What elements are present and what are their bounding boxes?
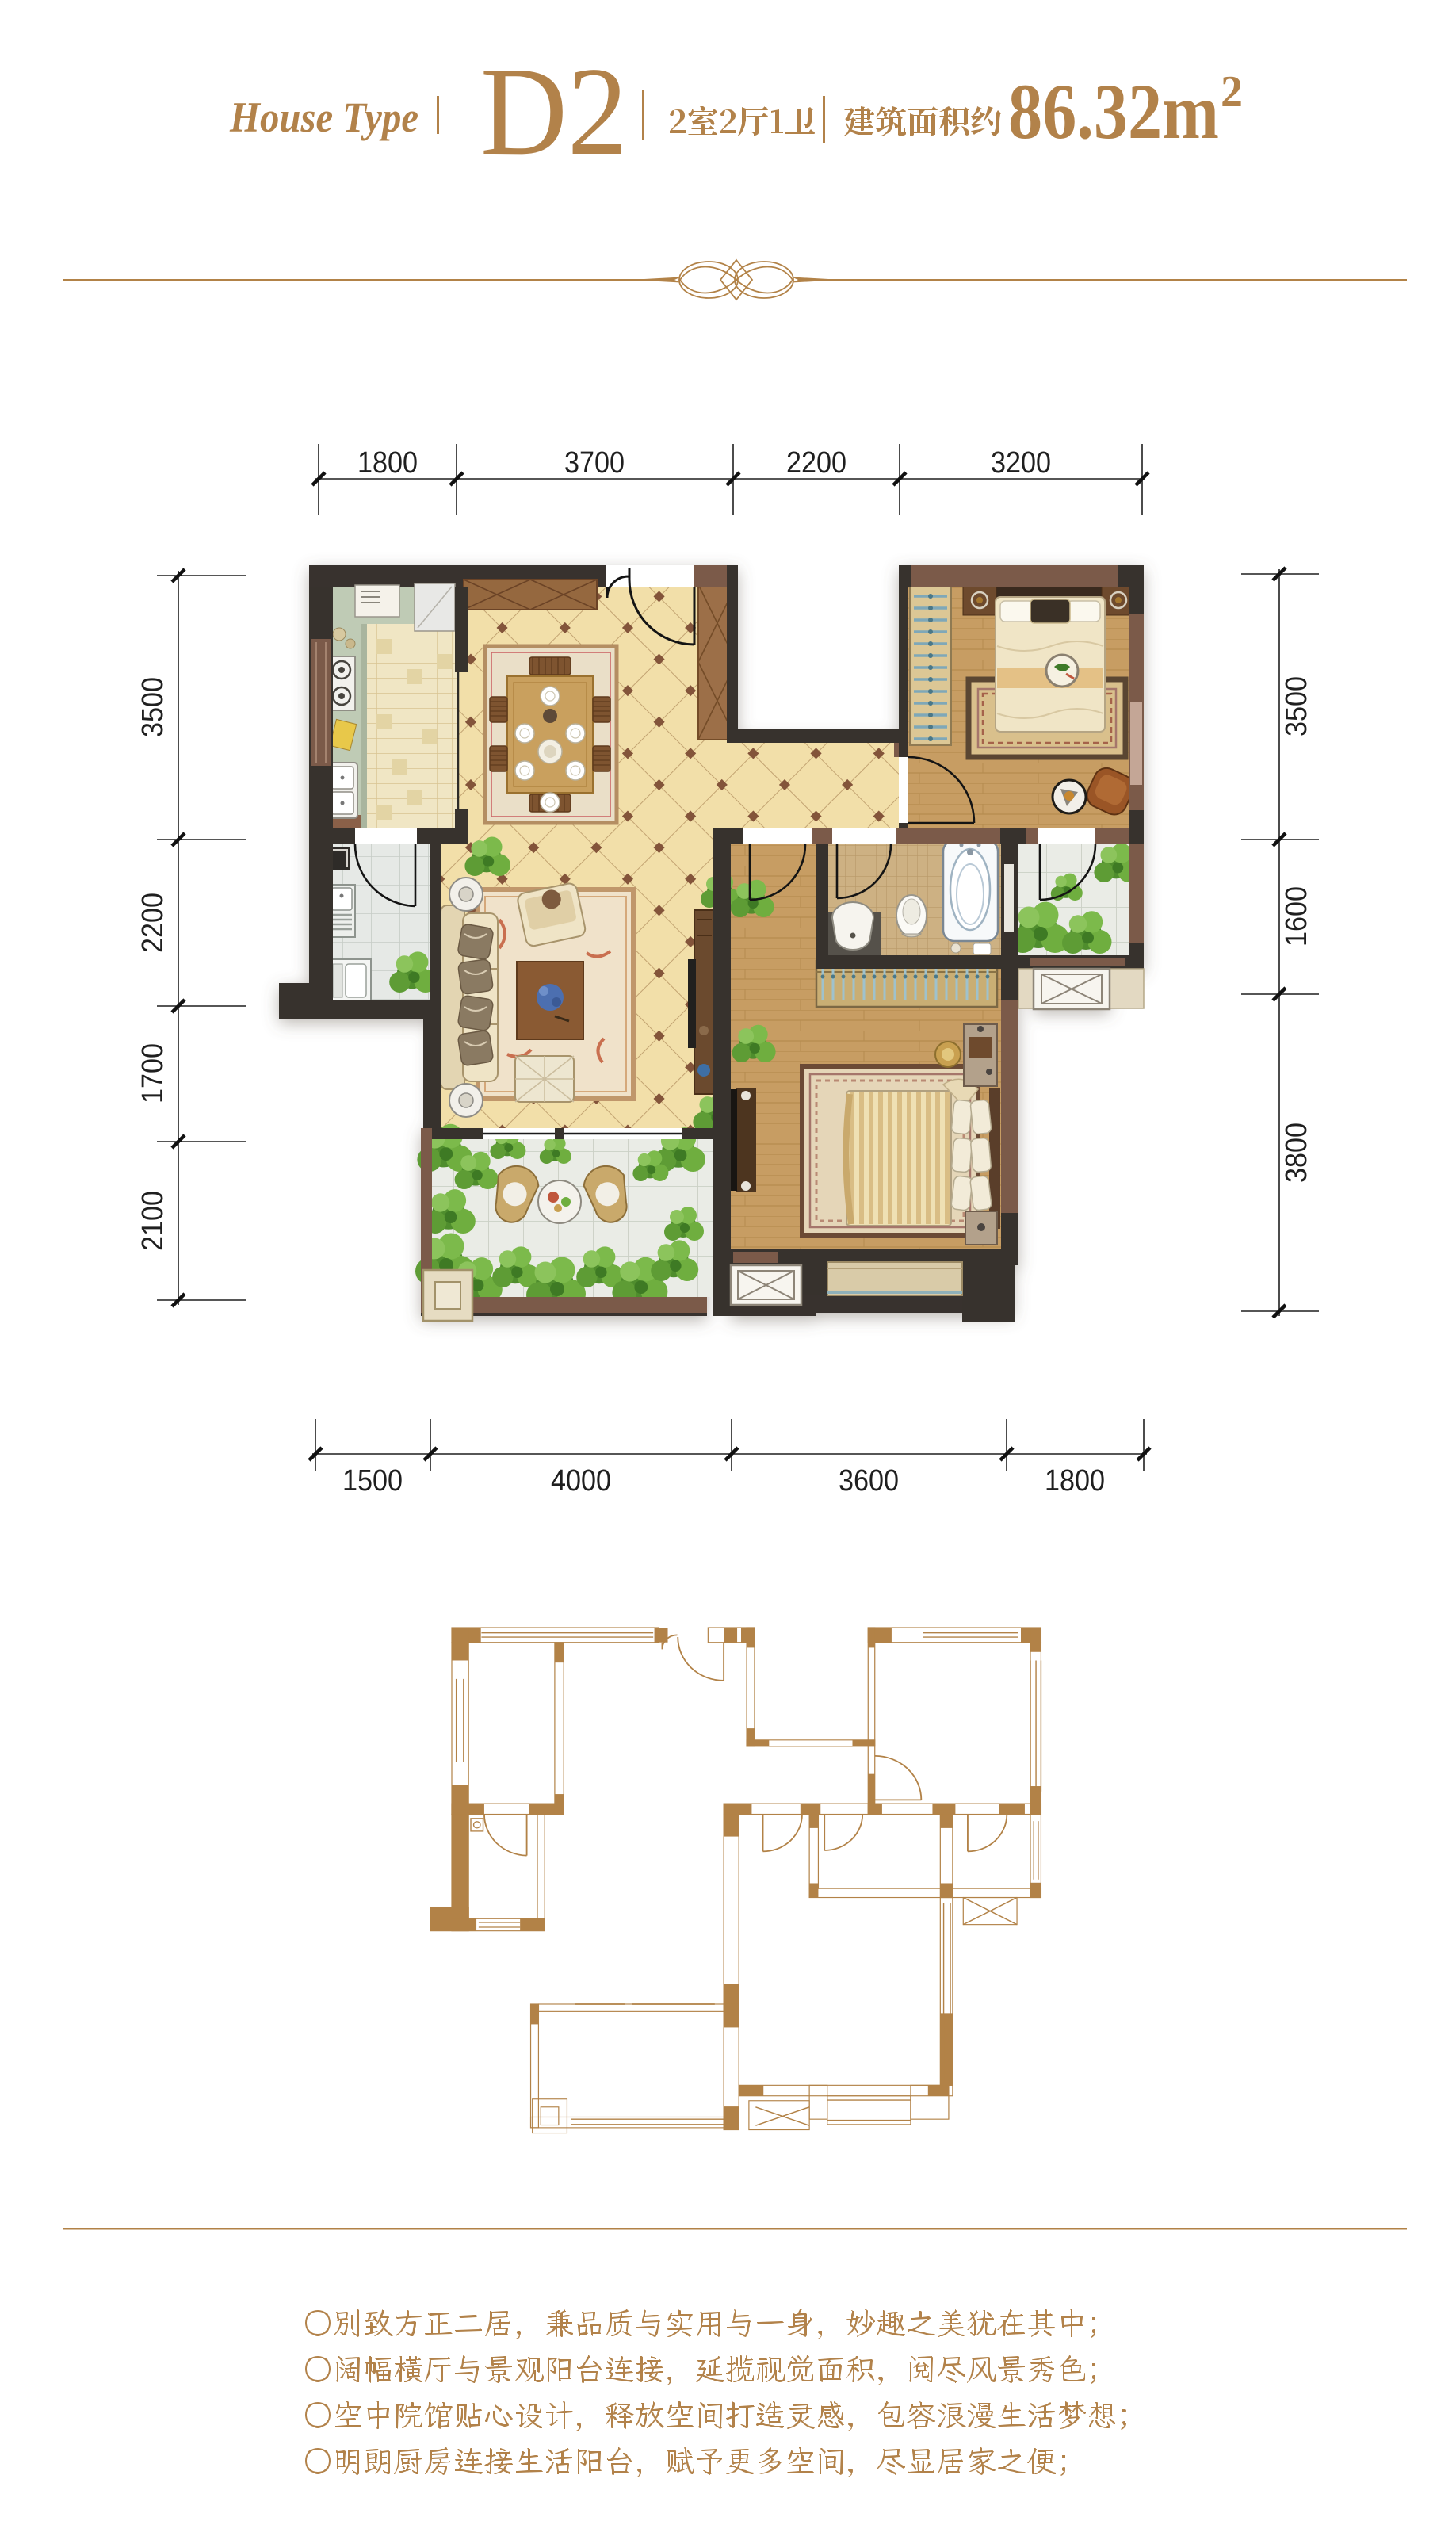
svg-text:4000: 4000: [551, 1464, 611, 1498]
svg-text:2100: 2100: [136, 1191, 170, 1251]
svg-text:3800: 3800: [1280, 1123, 1313, 1183]
svg-text:House Type: House Type: [229, 94, 418, 141]
svg-text:1500: 1500: [342, 1464, 403, 1498]
svg-text:2: 2: [1221, 67, 1243, 117]
svg-text:2200: 2200: [136, 893, 170, 953]
svg-text:3700: 3700: [564, 446, 625, 480]
svg-text:1700: 1700: [136, 1043, 170, 1104]
svg-text:3500: 3500: [136, 677, 170, 737]
svg-text:1600: 1600: [1280, 886, 1313, 947]
svg-text:3200: 3200: [991, 446, 1051, 480]
svg-text:86.32m: 86.32m: [1008, 67, 1219, 155]
svg-text:2200: 2200: [786, 446, 846, 480]
svg-text:3600: 3600: [839, 1464, 899, 1498]
svg-text:1800: 1800: [357, 446, 418, 480]
svg-text:D2: D2: [480, 40, 628, 182]
svg-text:3500: 3500: [1280, 676, 1313, 736]
svg-text:1800: 1800: [1045, 1464, 1105, 1498]
